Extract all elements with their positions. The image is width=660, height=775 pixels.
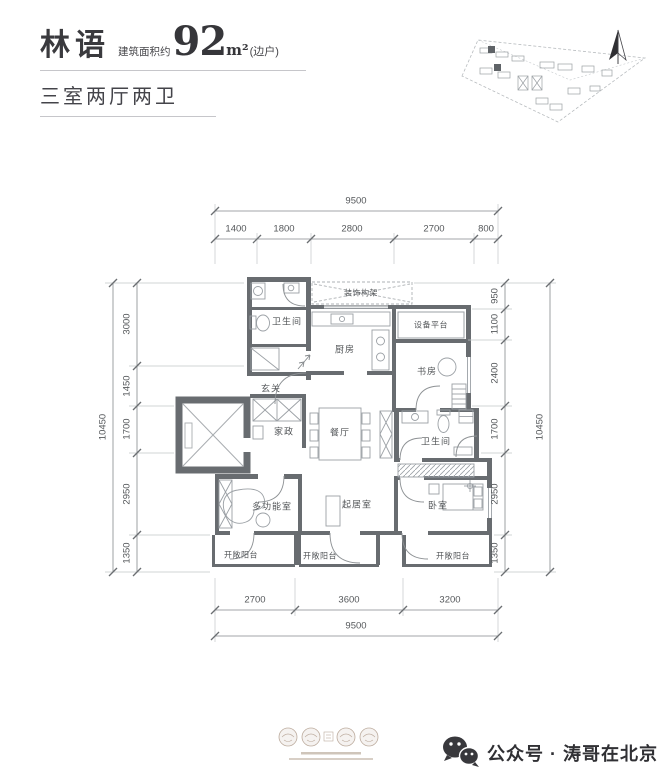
room-label-study: 书房 bbox=[417, 365, 437, 378]
wechat-icon bbox=[440, 733, 482, 771]
room-label-housekeeping: 家政 bbox=[274, 425, 294, 438]
dim-right-seg-2: 1100 bbox=[490, 314, 501, 334]
dim-top-seg-4: 2700 bbox=[423, 224, 444, 235]
dim-left-seg-3: 1700 bbox=[122, 418, 133, 439]
room-label-deco-frame: 装饰构架 bbox=[344, 288, 378, 299]
dim-top-total: 9500 bbox=[345, 196, 366, 207]
sliding-door-arrows bbox=[298, 355, 310, 369]
dim-top-seg-5: 800 bbox=[478, 224, 494, 235]
dim-bottom-total: 9500 bbox=[345, 621, 366, 632]
room-label-bathroom-right: 卫生间 bbox=[421, 435, 451, 448]
developer-logo-strip bbox=[268, 722, 394, 766]
dim-right-seg-3: 2400 bbox=[490, 362, 501, 383]
dim-left-seg-1: 3000 bbox=[122, 313, 133, 334]
dim-right-seg-4: 1700 bbox=[490, 418, 501, 439]
dim-top-seg-2: 1800 bbox=[273, 224, 294, 235]
wechat-account-label: 公众号 · 涛哥在北京 bbox=[487, 740, 658, 766]
dim-bottom-seg-3: 3200 bbox=[439, 595, 460, 606]
floorplan-page: 林语 建筑面积约 92 m² (边户) 三室两厅两卫 bbox=[0, 0, 660, 775]
dim-top-seg-1: 1400 bbox=[225, 224, 246, 235]
kitchen-window bbox=[324, 305, 388, 308]
walls bbox=[212, 277, 492, 567]
room-label-bathroom-top: 卫生间 bbox=[272, 315, 302, 328]
dim-left-seg-4: 2950 bbox=[122, 483, 133, 504]
dim-right-seg-6: 1350 bbox=[490, 542, 501, 563]
room-label-balcony-mid: 开敞阳台 bbox=[303, 551, 337, 562]
room-label-bedroom: 卧室 bbox=[428, 499, 448, 512]
dim-bottom-seg-1: 2700 bbox=[244, 595, 265, 606]
dim-right-total: 10450 bbox=[535, 414, 546, 440]
dim-left-total: 10450 bbox=[98, 414, 109, 440]
room-label-living: 起居室 bbox=[342, 498, 372, 511]
room-label-balcony-right: 开敞阳台 bbox=[436, 551, 470, 562]
elevator bbox=[179, 400, 251, 470]
room-label-kitchen: 厨房 bbox=[335, 343, 355, 356]
witness-lines bbox=[105, 204, 556, 642]
study-window bbox=[468, 357, 471, 393]
room-label-balcony-left: 开敞阳台 bbox=[224, 550, 258, 561]
dim-left-seg-2: 1450 bbox=[122, 375, 133, 396]
room-label-multi-function: 多功能室 bbox=[252, 500, 292, 513]
room-label-entry: 玄关 bbox=[261, 382, 281, 395]
dim-right-seg-5: 2950 bbox=[490, 483, 501, 504]
dim-left-seg-5: 1350 bbox=[122, 542, 133, 563]
room-label-dining: 餐厅 bbox=[330, 426, 350, 439]
dim-top-seg-3: 2800 bbox=[341, 224, 362, 235]
room-label-equipment-platform: 设备平台 bbox=[414, 320, 448, 331]
floor-plan-drawing bbox=[0, 0, 660, 775]
dim-right-seg-1: 950 bbox=[490, 288, 501, 304]
dim-bottom-seg-2: 3600 bbox=[338, 595, 359, 606]
